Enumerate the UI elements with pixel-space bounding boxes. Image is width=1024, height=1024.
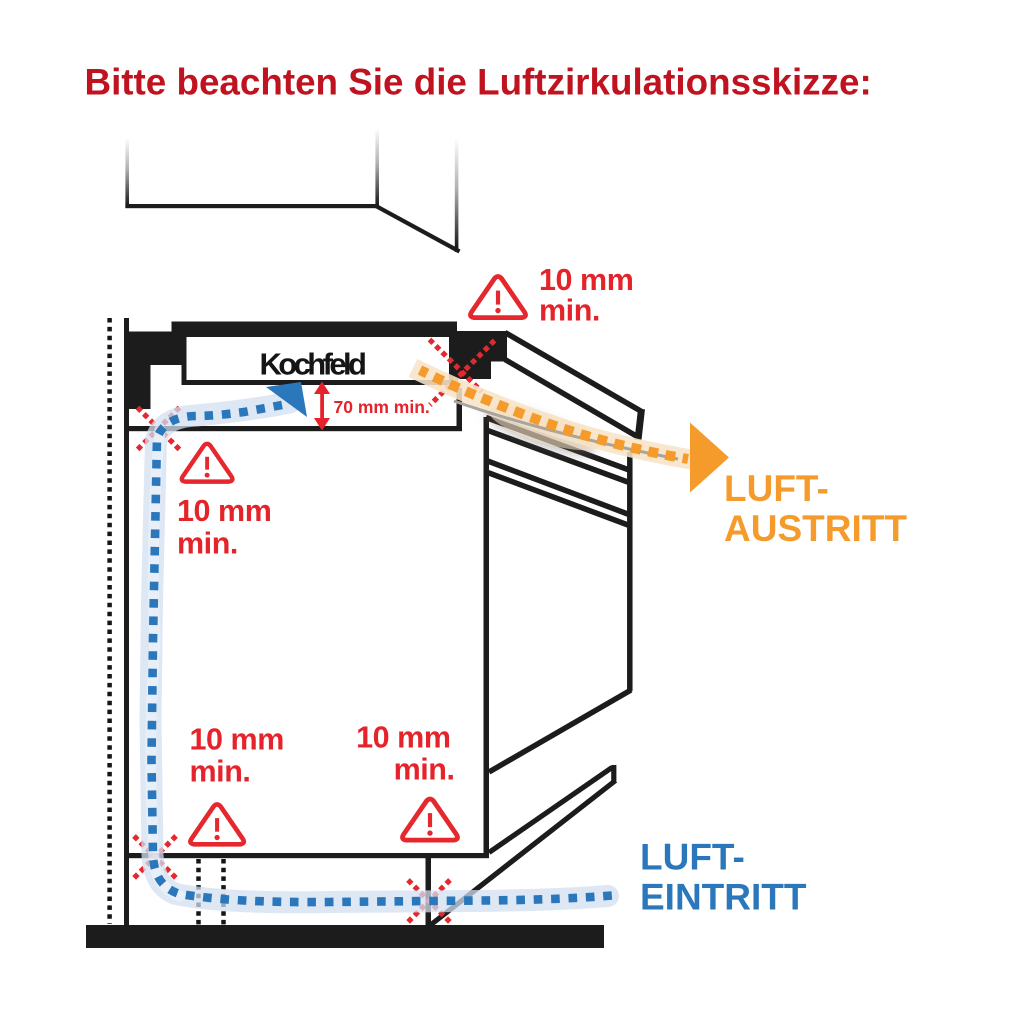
svg-text:min.: min. <box>190 754 251 788</box>
svg-text:10 mm: 10 mm <box>190 722 284 756</box>
svg-text:10 mm: 10 mm <box>356 720 450 754</box>
svg-text:min.: min. <box>394 753 455 787</box>
svg-text:LUFT-: LUFT- <box>724 468 829 509</box>
svg-text:10 mm: 10 mm <box>177 494 271 528</box>
svg-text:min.: min. <box>539 293 600 327</box>
svg-text:LUFT-: LUFT- <box>640 837 745 878</box>
svg-text:EINTRITT: EINTRITT <box>640 877 807 918</box>
svg-text:Kochfeld: Kochfeld <box>260 347 365 382</box>
svg-text:AUSTRITT: AUSTRITT <box>724 508 907 549</box>
svg-text:70 mm min.: 70 mm min. <box>334 397 430 417</box>
svg-text:Bitte beachten Sie die Luftzir: Bitte beachten Sie die Luftzirkulationss… <box>85 62 872 103</box>
svg-text:min.: min. <box>177 526 238 560</box>
svg-text:10 mm: 10 mm <box>539 263 633 297</box>
